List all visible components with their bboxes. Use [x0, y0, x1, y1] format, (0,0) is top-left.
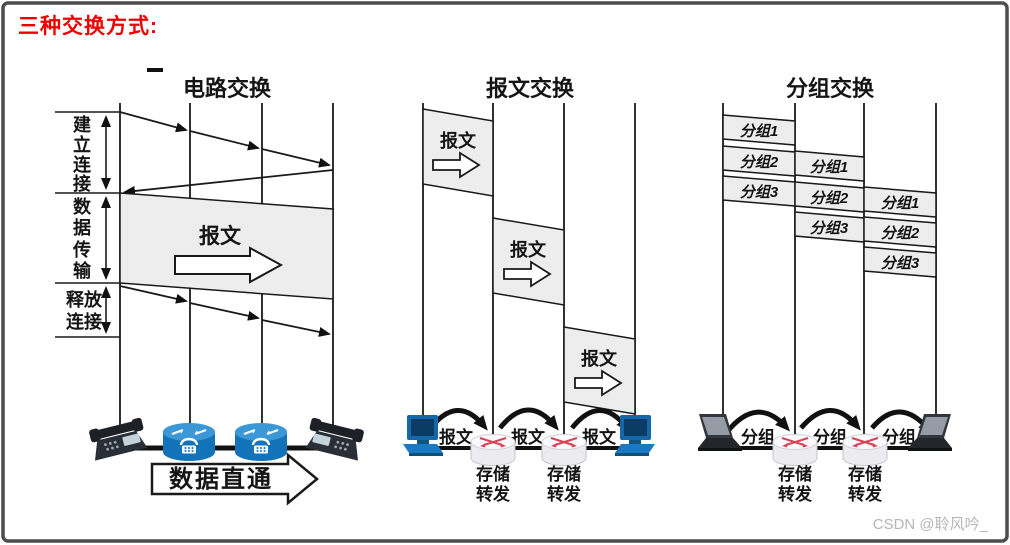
svg-text:据: 据: [73, 217, 91, 238]
hop-label: 报文: [439, 427, 474, 447]
packet-router-icon: [542, 435, 586, 466]
message-title: 报文交换: [486, 76, 575, 101]
svg-text:连: 连: [73, 154, 92, 175]
svg-text:存储: 存储: [848, 464, 882, 484]
message-block: 报文: [564, 327, 635, 414]
svg-text:接: 接: [73, 173, 91, 194]
page-title: 三种交换方式:: [18, 14, 158, 38]
svg-text:转发: 转发: [547, 484, 582, 504]
svg-text:分组3: 分组3: [810, 220, 849, 237]
packet-router-icon: [843, 435, 887, 466]
hop-label: 报文: [511, 427, 546, 447]
watermark: CSDN @聆风吟_: [873, 516, 989, 533]
packet-block: 分组2: [723, 146, 795, 176]
computer-icon: [615, 415, 655, 456]
packet-block: 分组3: [723, 176, 795, 206]
svg-text:输: 输: [73, 260, 92, 281]
svg-text:转发: 转发: [848, 484, 883, 504]
svg-text:建: 建: [73, 114, 91, 135]
svg-text:数: 数: [73, 196, 92, 217]
svg-text:分组2: 分组2: [810, 190, 849, 207]
packet-block: 分组1: [795, 151, 864, 181]
svg-text:立: 立: [73, 134, 91, 155]
svg-text:转发: 转发: [778, 484, 813, 504]
svg-text:报文: 报文: [510, 239, 547, 260]
svg-text:存储: 存储: [778, 464, 812, 484]
telephone-switch-icon: [163, 423, 215, 461]
packet-block: 分组3: [795, 212, 864, 242]
message-block: 报文: [423, 109, 493, 196]
hop-label: 分组: [813, 427, 847, 447]
packet-block: 分组1: [864, 187, 936, 217]
packet-block: 分组2: [795, 182, 864, 212]
packet-title: 分组交换: [786, 76, 875, 101]
svg-text:分组1: 分组1: [740, 123, 778, 140]
hop-label: 报文: [582, 427, 617, 447]
svg-text:分组3: 分组3: [740, 184, 779, 201]
svg-text:分组2: 分组2: [881, 225, 920, 242]
telephone-switch-icon: [235, 423, 287, 461]
message-block: 报文: [493, 218, 564, 305]
svg-text:分组1: 分组1: [881, 195, 919, 212]
packet-block: 分组2: [864, 217, 936, 247]
packet-router-icon: [471, 435, 515, 466]
hop-label: 分组: [741, 427, 775, 447]
svg-text:转发: 转发: [476, 484, 511, 504]
svg-text:存储: 存储: [547, 464, 581, 484]
slide: 三种交换方式: 电路交换 建 立 连 接 数: [0, 0, 1010, 545]
svg-text:分组3: 分组3: [881, 255, 920, 272]
svg-text:分组1: 分组1: [810, 159, 848, 176]
svg-text:释放: 释放: [66, 289, 103, 310]
computer-icon: [403, 415, 443, 456]
svg-text:报文: 报文: [581, 348, 618, 369]
svg-text:报文: 报文: [440, 130, 477, 151]
packet-router-icon: [773, 435, 817, 466]
packet-block: 分组1: [723, 115, 795, 145]
svg-text:存储: 存储: [476, 464, 510, 484]
svg-text:分组2: 分组2: [740, 154, 779, 171]
phase-label-setup: 建 立 连 接: [73, 114, 92, 194]
packet-block: 分组3: [864, 247, 936, 277]
svg-text:传: 传: [72, 239, 91, 260]
svg-text:连接: 连接: [66, 311, 102, 332]
data-through-label: 数据直通: [169, 466, 273, 493]
circuit-title: 电路交换: [183, 76, 272, 101]
title-underline-mark: [147, 68, 163, 72]
message-band-label: 报文: [199, 224, 242, 248]
